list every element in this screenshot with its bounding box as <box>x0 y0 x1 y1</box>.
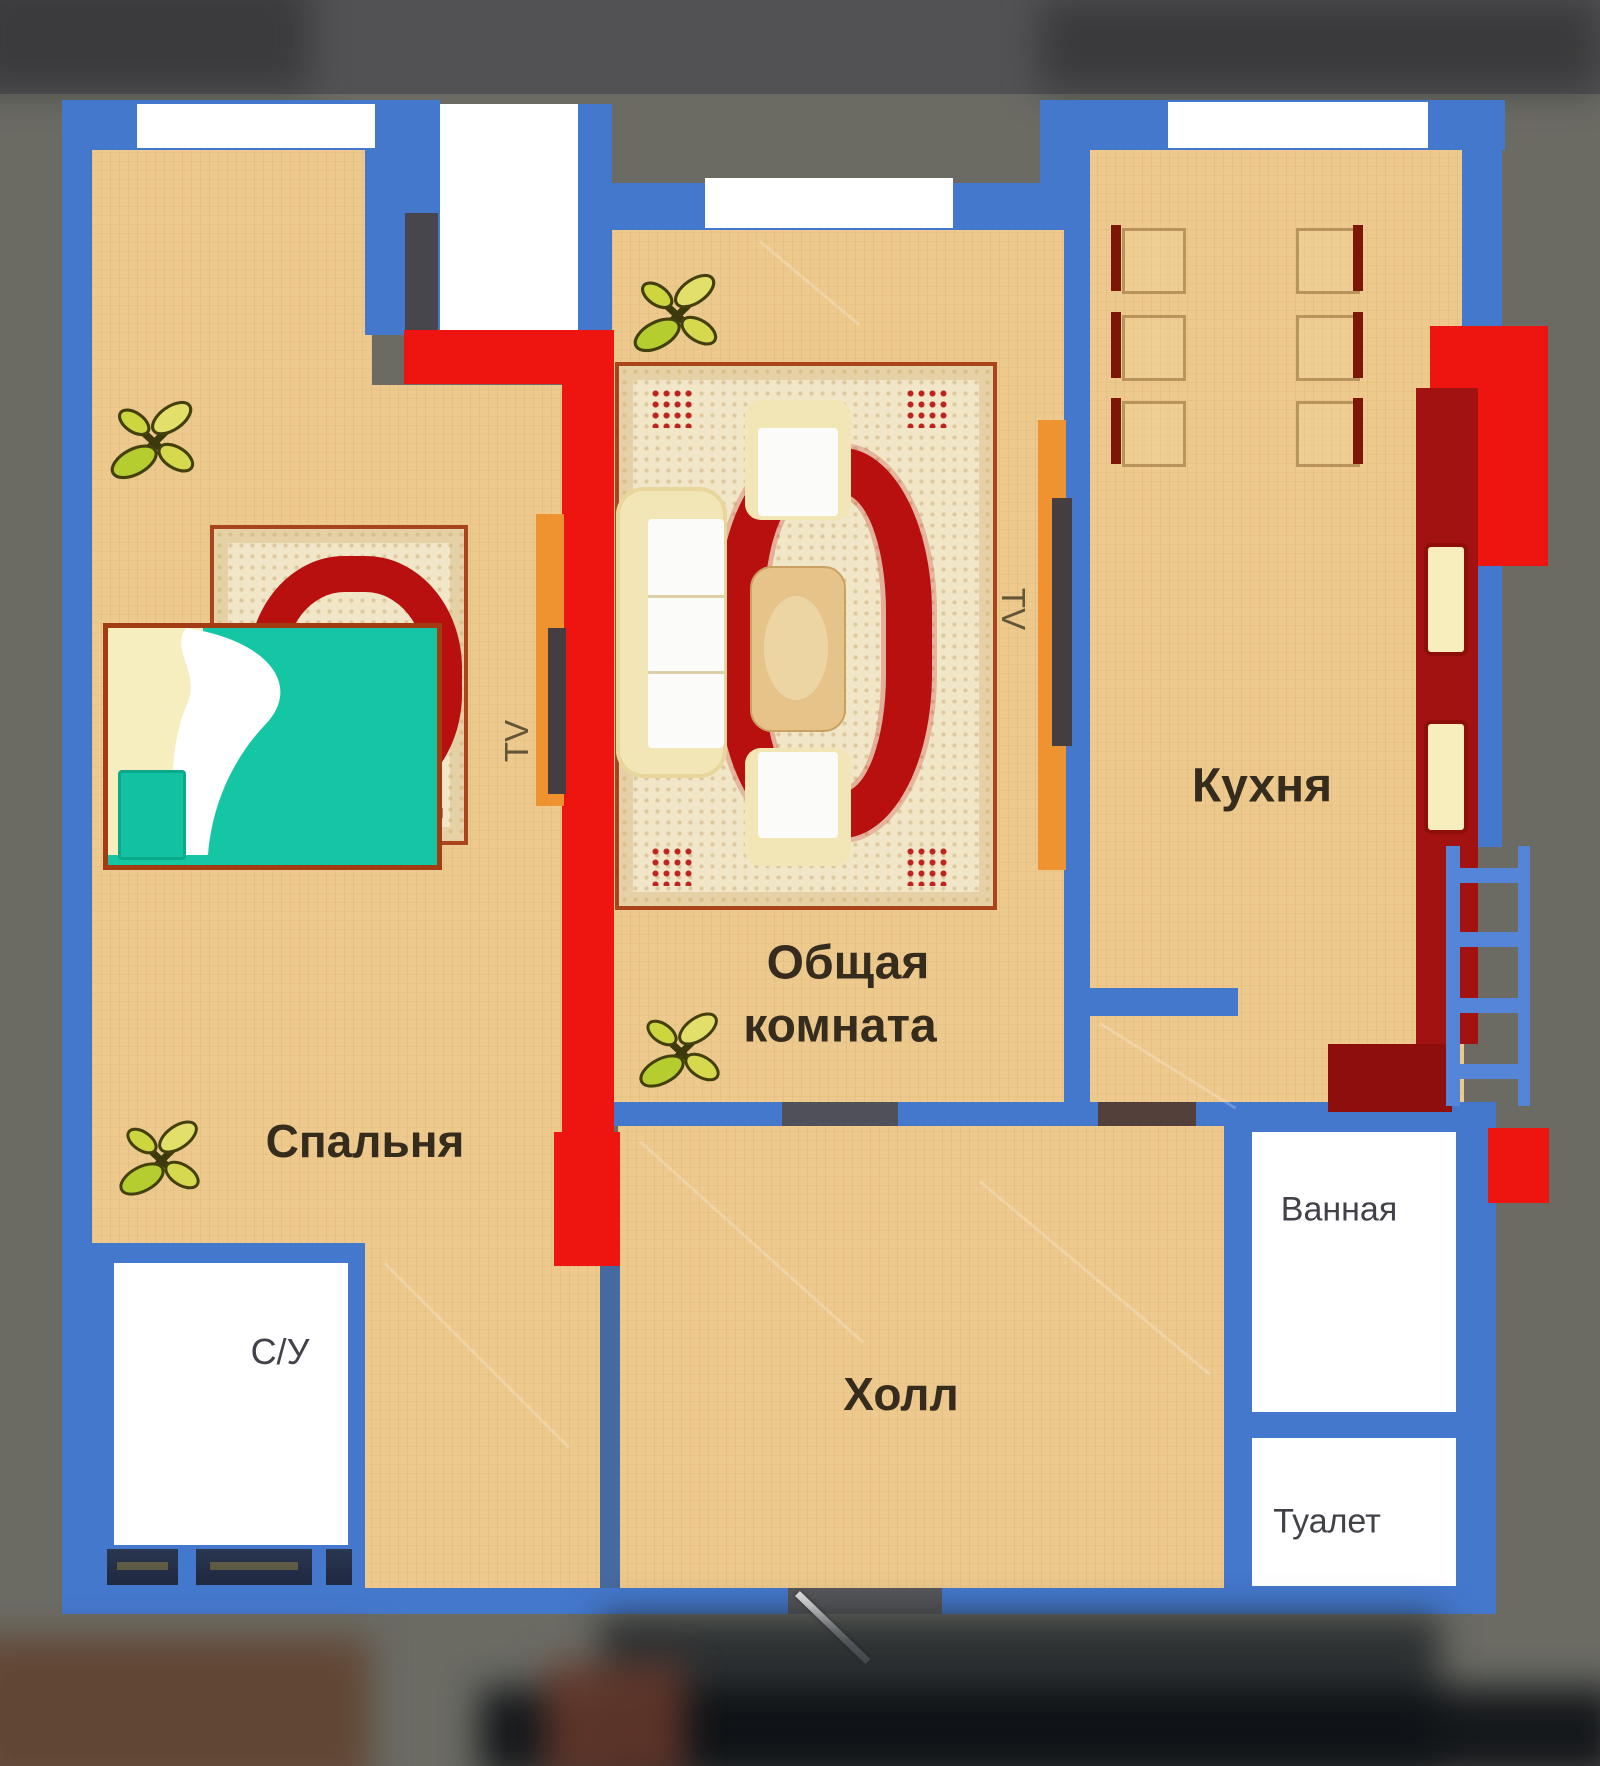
kitchen-chair <box>1122 315 1186 381</box>
room-label-living-line1: Общая <box>767 936 930 991</box>
sofa-cushions <box>648 519 724 748</box>
plant-icon <box>632 998 732 1104</box>
kitchen-chair-back <box>1353 312 1363 378</box>
room-bedroom-floor-top <box>92 147 372 387</box>
room-label-hall: Холл <box>843 1367 958 1421</box>
background-brown-small <box>545 1662 685 1766</box>
coffee-table <box>750 566 846 732</box>
room-label-living-line2: комната <box>743 999 936 1054</box>
armchair-seat <box>758 752 838 838</box>
room-bedroom-nook-floor <box>362 1243 618 1591</box>
wall-kitchen-corner <box>1040 100 1090 230</box>
niche-top <box>440 104 578 333</box>
carpet-corner-motif <box>905 388 949 428</box>
floor-plan: TV TV <box>0 0 1600 1766</box>
armchair-bottom <box>745 748 851 866</box>
room-label-kitchen: Кухня <box>1192 759 1332 814</box>
wall-niche-post-shadow <box>405 213 438 333</box>
wc-fixture-2 <box>196 1549 312 1585</box>
kitchen-counter-bottom <box>1328 1044 1452 1112</box>
room-label-wc: С/У <box>251 1331 310 1373</box>
kitchen-appliance-1 <box>1424 543 1468 656</box>
kitchen-chair-back <box>1111 312 1121 378</box>
carpet-corner-motif <box>650 388 694 428</box>
wall-hall-left-thin <box>600 1262 620 1592</box>
background-brown-left <box>0 1638 370 1766</box>
kitchen-chair-back <box>1353 398 1363 464</box>
room-label-bedroom: Спальня <box>266 1114 465 1168</box>
plant-icon <box>626 260 730 368</box>
kitchen-chair-back <box>1111 398 1121 464</box>
sofa-cushion-divider <box>648 595 724 598</box>
wc-fixture-1 <box>107 1549 178 1585</box>
sofa-cushion-divider <box>648 671 724 674</box>
wall-kitchen-bottom-left <box>1086 988 1238 1016</box>
background-top-right-shadow <box>1040 0 1600 90</box>
sofa <box>616 487 727 778</box>
red-box-bathroom-side <box>1488 1128 1549 1203</box>
room-kitchen-floor <box>1088 150 1464 1112</box>
kitchen-chair <box>1296 401 1360 467</box>
accent-wall-horizontal <box>404 330 614 384</box>
wc-fixture-3 <box>326 1549 352 1585</box>
armchair-top <box>745 400 851 520</box>
room-hall-floor <box>618 1104 1236 1591</box>
door-opening-living-hall <box>782 1102 898 1126</box>
ladder <box>1446 846 1530 1106</box>
kitchen-chair <box>1122 228 1186 294</box>
kitchen-chair <box>1296 315 1360 381</box>
coffee-table-pattern <box>764 596 828 700</box>
background-top-left-shadow <box>0 0 310 90</box>
kitchen-chair-back <box>1111 225 1121 291</box>
room-label-toilet: Туалет <box>1273 1503 1381 1542</box>
accent-wall-vertical-bottom <box>554 1132 620 1266</box>
room-wc-interior <box>114 1263 348 1545</box>
kitchen-appliance-2 <box>1424 720 1468 834</box>
carpet-corner-motif <box>650 846 694 886</box>
room-label-bathroom: Ванная <box>1281 1191 1397 1230</box>
door-opening-kitchen-vestibule <box>1098 1102 1196 1126</box>
bed-nightstand <box>118 770 186 860</box>
window-kitchen <box>1168 102 1428 148</box>
living-tv-label: TV <box>994 588 1032 630</box>
bedroom-tv <box>548 628 566 794</box>
wall-niche-right-post <box>578 104 612 335</box>
kitchen-chair-back <box>1353 225 1363 291</box>
accent-wall-vertical <box>562 380 614 1136</box>
armchair-seat <box>758 428 838 516</box>
window-bedroom <box>137 104 375 148</box>
plant-icon <box>112 1103 212 1215</box>
bedroom-tv-label: TV <box>498 720 536 762</box>
kitchen-chair <box>1296 228 1360 294</box>
kitchen-chair <box>1122 401 1186 467</box>
room-bathroom-interior <box>1252 1132 1456 1412</box>
window-living <box>705 178 953 228</box>
plant-icon <box>103 382 207 500</box>
carpet-corner-motif <box>905 846 949 886</box>
wall-left <box>62 100 92 1613</box>
living-tv <box>1052 498 1072 746</box>
